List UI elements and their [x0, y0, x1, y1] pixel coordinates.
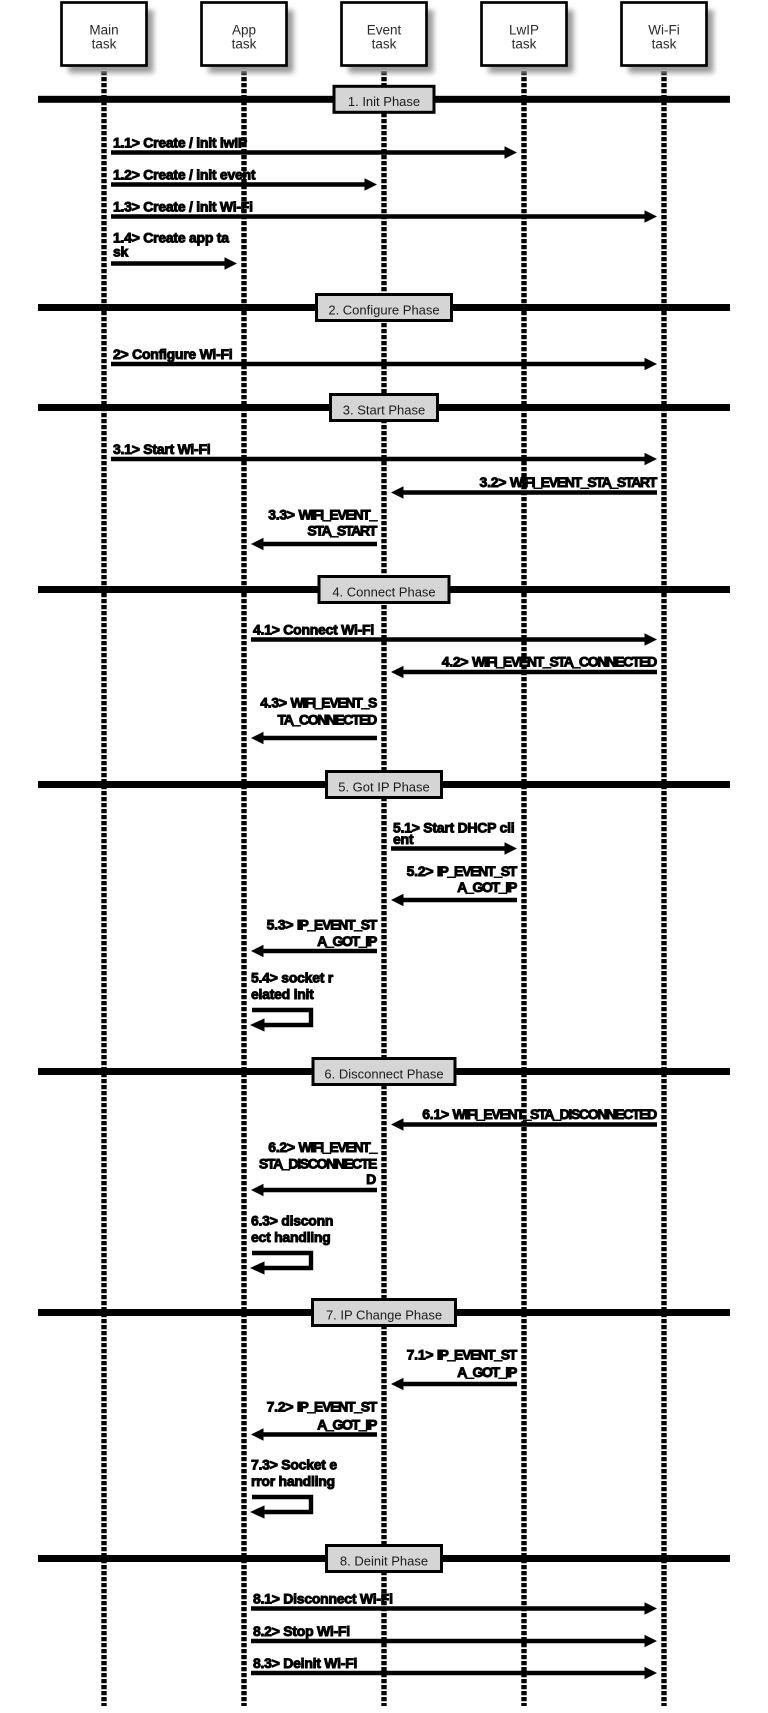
svg-text:A_GOT_IP: A_GOT_IP [457, 1364, 517, 1380]
svg-text:8.3> Deinit Wi-Fi: 8.3> Deinit Wi-Fi [253, 1655, 357, 1671]
svg-text:elated init: elated init [251, 986, 314, 1002]
svg-text:4.2> WIFI_EVENT_STA_CONNECTED: 4.2> WIFI_EVENT_STA_CONNECTED [442, 654, 657, 670]
svg-text:3. Start Phase: 3. Start Phase [343, 402, 425, 417]
svg-text:App: App [232, 23, 256, 38]
svg-text:STA_DISCONNECTE: STA_DISCONNECTE [259, 1156, 377, 1172]
svg-text:6.2> WIFI_EVENT_: 6.2> WIFI_EVENT_ [268, 1139, 377, 1155]
svg-text:1.3> Create / init Wi-Fi: 1.3> Create / init Wi-Fi [113, 199, 253, 215]
svg-text:2. Configure Phase: 2. Configure Phase [328, 302, 439, 317]
svg-text:1. Init Phase: 1. Init Phase [348, 94, 420, 109]
svg-text:LwIP: LwIP [509, 23, 539, 38]
svg-text:7.2> IP_EVENT_ST: 7.2> IP_EVENT_ST [267, 1399, 378, 1415]
svg-text:task: task [652, 37, 677, 52]
svg-text:8.2> Stop Wi-Fi: 8.2> Stop Wi-Fi [253, 1623, 350, 1639]
svg-text:ect handling: ect handling [251, 1229, 330, 1245]
svg-text:4. Connect Phase: 4. Connect Phase [332, 584, 435, 599]
svg-text:Event: Event [367, 23, 402, 38]
svg-text:task: task [92, 37, 117, 52]
svg-text:3.3> WIFI_EVENT_: 3.3> WIFI_EVENT_ [268, 507, 377, 523]
svg-text:1.1> Create / init lwIP: 1.1> Create / init lwIP [113, 135, 247, 151]
svg-text:Main: Main [89, 23, 118, 38]
svg-text:5. Got IP Phase: 5. Got IP Phase [338, 779, 430, 794]
svg-text:ent: ent [393, 831, 414, 847]
svg-text:5.2> IP_EVENT_ST: 5.2> IP_EVENT_ST [407, 863, 518, 879]
svg-text:task: task [512, 37, 537, 52]
svg-text:A_GOT_IP: A_GOT_IP [457, 879, 517, 895]
svg-text:7.1> IP_EVENT_ST: 7.1> IP_EVENT_ST [407, 1347, 518, 1363]
svg-text:A_GOT_IP: A_GOT_IP [317, 933, 377, 949]
svg-text:6.3> disconn: 6.3> disconn [251, 1213, 333, 1229]
svg-text:5.4> socket r: 5.4> socket r [251, 970, 334, 986]
svg-text:6. Disconnect Phase: 6. Disconnect Phase [324, 1066, 443, 1081]
svg-text:7. IP Change Phase: 7. IP Change Phase [326, 1307, 442, 1322]
svg-text:4.3> WIFI_EVENT_S: 4.3> WIFI_EVENT_S [260, 695, 377, 711]
svg-text:A_GOT_IP: A_GOT_IP [317, 1417, 377, 1433]
svg-text:D: D [366, 1171, 376, 1187]
svg-text:Wi-Fi: Wi-Fi [648, 23, 679, 38]
svg-text:sk: sk [113, 244, 129, 260]
svg-text:8.1> Disconnect Wi-Fi: 8.1> Disconnect Wi-Fi [253, 1591, 393, 1607]
svg-text:task: task [372, 37, 397, 52]
svg-text:STA_START: STA_START [307, 523, 377, 539]
svg-text:7.3> Socket e: 7.3> Socket e [251, 1457, 337, 1473]
svg-text:TA_CONNECTED: TA_CONNECTED [278, 712, 378, 728]
svg-text:rror handling: rror handling [251, 1473, 335, 1489]
svg-text:2> Configure Wi-Fi: 2> Configure Wi-Fi [113, 346, 232, 362]
svg-text:3.1> Start Wi-Fi: 3.1> Start Wi-Fi [113, 441, 210, 457]
svg-text:4.1> Connect Wi-Fi: 4.1> Connect Wi-Fi [253, 622, 374, 638]
svg-text:task: task [232, 37, 257, 52]
svg-text:8. Deinit Phase: 8. Deinit Phase [340, 1553, 428, 1568]
svg-text:5.3> IP_EVENT_ST: 5.3> IP_EVENT_ST [267, 917, 378, 933]
svg-text:6.1> WIFI_EVENT_STA_DISCONNECT: 6.1> WIFI_EVENT_STA_DISCONNECTED [422, 1106, 657, 1122]
svg-text:1.4> Create app ta: 1.4> Create app ta [113, 230, 229, 246]
svg-text:3.2> WIFI_EVENT_STA_START: 3.2> WIFI_EVENT_STA_START [480, 474, 658, 490]
svg-text:1.2> Create / init event: 1.2> Create / init event [113, 167, 256, 183]
